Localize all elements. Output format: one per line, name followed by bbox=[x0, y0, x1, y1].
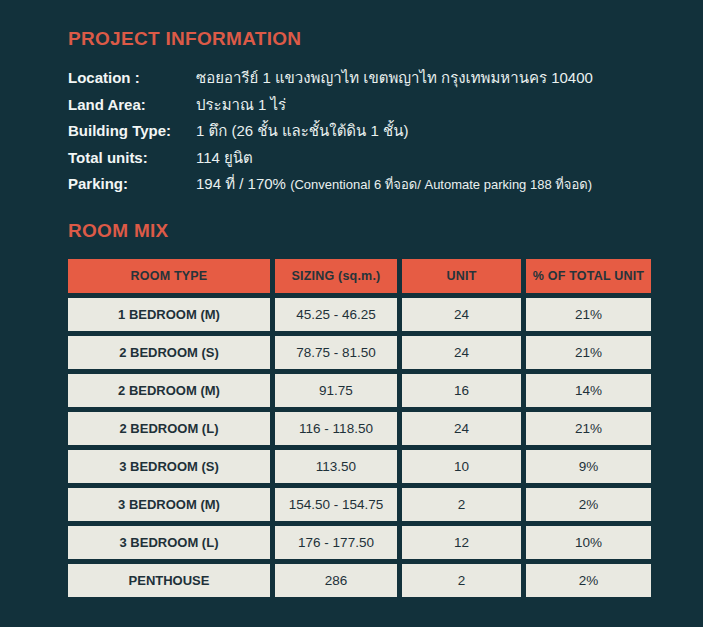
info-field-label: Land Area: bbox=[68, 92, 196, 119]
table-cell: 24 bbox=[402, 412, 521, 445]
table-cell: 116 - 118.50 bbox=[275, 412, 397, 445]
info-field-value: ประมาณ 1 ไร่ bbox=[196, 92, 286, 119]
info-row: Total units:114 ยูนิต bbox=[68, 145, 653, 172]
table-cell: 2 bbox=[402, 564, 521, 597]
table-cell: 3 BEDROOM (M) bbox=[68, 488, 270, 521]
table-cell: 14% bbox=[526, 374, 651, 407]
table-cell: 2% bbox=[526, 488, 651, 521]
table-cell: 286 bbox=[275, 564, 397, 597]
project-information-title: PROJECT INFORMATION bbox=[68, 28, 653, 50]
table-cell: 21% bbox=[526, 336, 651, 369]
project-info-fields: Location :ซอยอารีย์ 1 แขวงพญาไท เขตพญาไท… bbox=[68, 65, 653, 199]
table-cell: 91.75 bbox=[275, 374, 397, 407]
info-field-label: Location : bbox=[68, 65, 196, 92]
table-cell: 78.75 - 81.50 bbox=[275, 336, 397, 369]
table-cell: 176 - 177.50 bbox=[275, 526, 397, 559]
info-field-value: 1 ตึก (26 ชั้น และชั้นใต้ดิน 1 ชั้น) bbox=[196, 118, 408, 145]
table-cell: 2 BEDROOM (S) bbox=[68, 336, 270, 369]
table-cell: 45.25 - 46.25 bbox=[275, 298, 397, 331]
table-cell: 9% bbox=[526, 450, 651, 483]
table-cell: 16 bbox=[402, 374, 521, 407]
table-cell: 113.50 bbox=[275, 450, 397, 483]
table-cell: 12 bbox=[402, 526, 521, 559]
table-header-cell: ROOM TYPE bbox=[68, 259, 270, 293]
table-cell: 154.50 - 154.75 bbox=[275, 488, 397, 521]
table-cell: PENTHOUSE bbox=[68, 564, 270, 597]
info-row: Location :ซอยอารีย์ 1 แขวงพญาไท เขตพญาไท… bbox=[68, 65, 653, 92]
table-cell: 10 bbox=[402, 450, 521, 483]
table-cell: 1 BEDROOM (M) bbox=[68, 298, 270, 331]
table-cell: 3 BEDROOM (L) bbox=[68, 526, 270, 559]
table-cell: 2 BEDROOM (M) bbox=[68, 374, 270, 407]
room-mix-table: ROOM TYPESIZING (sq.m.)UNIT% OF TOTAL UN… bbox=[68, 259, 651, 597]
table-header-cell: UNIT bbox=[402, 259, 521, 293]
table-cell: 10% bbox=[526, 526, 651, 559]
table-header-cell: % OF TOTAL UNIT bbox=[526, 259, 651, 293]
table-cell: 24 bbox=[402, 336, 521, 369]
info-field-note: (Conventional 6 ที่จอด/ Automate parking… bbox=[290, 177, 592, 192]
table-cell: 3 BEDROOM (S) bbox=[68, 450, 270, 483]
table-cell: 24 bbox=[402, 298, 521, 331]
info-row: Land Area:ประมาณ 1 ไร่ bbox=[68, 92, 653, 119]
info-row: Building Type:1 ตึก (26 ชั้น และชั้นใต้ด… bbox=[68, 118, 653, 145]
table-cell: 2 BEDROOM (L) bbox=[68, 412, 270, 445]
room-mix-title: ROOM MIX bbox=[68, 220, 653, 242]
info-row: Parking:194 ที่ / 170% (Conventional 6 ท… bbox=[68, 171, 653, 199]
table-cell: 2 bbox=[402, 488, 521, 521]
table-cell: 21% bbox=[526, 412, 651, 445]
info-field-value: ซอยอารีย์ 1 แขวงพญาไท เขตพญาไท กรุงเทพมห… bbox=[196, 65, 593, 92]
table-cell: 21% bbox=[526, 298, 651, 331]
info-field-value: 194 ที่ / 170% (Conventional 6 ที่จอด/ A… bbox=[196, 171, 592, 199]
info-field-label: Building Type: bbox=[68, 118, 196, 145]
info-field-label: Total units: bbox=[68, 145, 196, 172]
table-header-cell: SIZING (sq.m.) bbox=[275, 259, 397, 293]
table-cell: 2% bbox=[526, 564, 651, 597]
info-field-label: Parking: bbox=[68, 171, 196, 198]
info-field-value: 114 ยูนิต bbox=[196, 145, 253, 172]
infographic-page: PROJECT INFORMATION Location :ซอยอารีย์ … bbox=[0, 0, 703, 627]
